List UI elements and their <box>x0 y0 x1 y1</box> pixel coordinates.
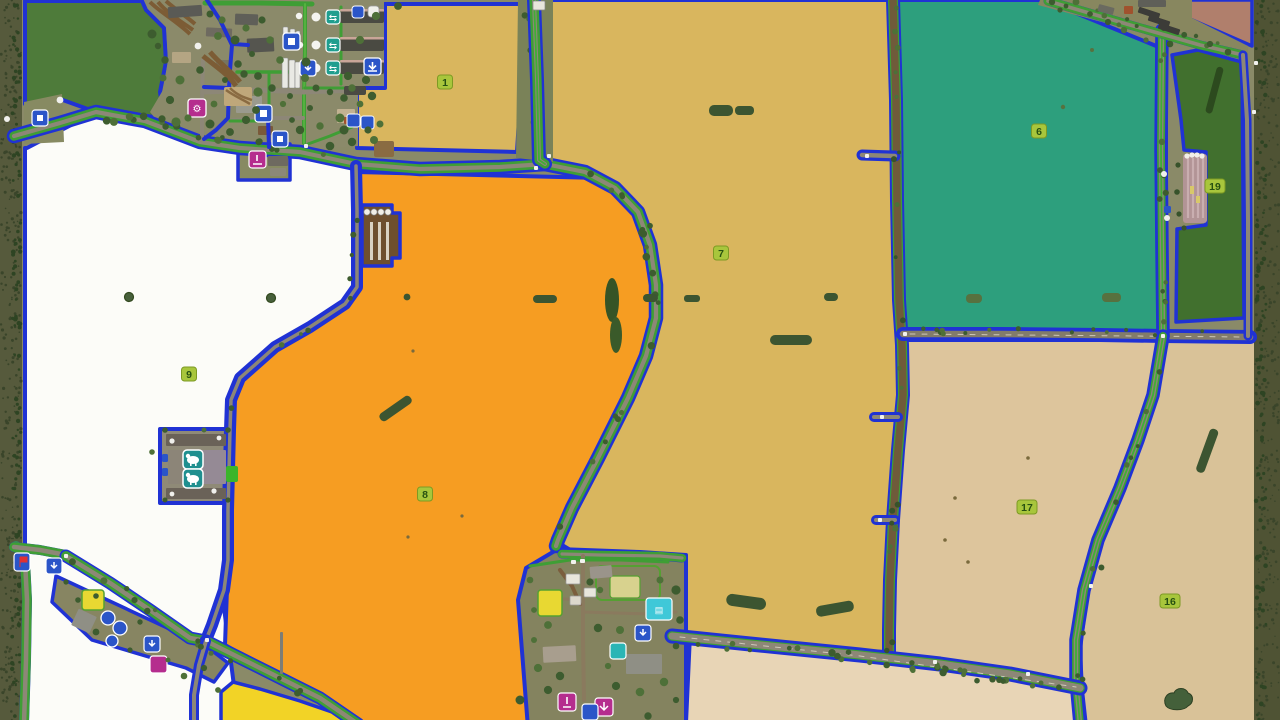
svg-text:⇆: ⇆ <box>329 41 337 52</box>
svg-text:9: 9 <box>186 369 192 381</box>
svg-text:⚙: ⚙ <box>193 104 202 115</box>
svg-text:6: 6 <box>1036 126 1042 138</box>
svg-text:8: 8 <box>422 489 428 501</box>
svg-text:19: 19 <box>1209 181 1221 193</box>
svg-text:⇆: ⇆ <box>329 64 337 75</box>
svg-text:▤: ▤ <box>655 605 664 615</box>
svg-text:16: 16 <box>1164 596 1176 608</box>
svg-text:7: 7 <box>718 248 724 260</box>
svg-text:1: 1 <box>442 77 448 89</box>
svg-text:17: 17 <box>1021 502 1033 514</box>
svg-text:⇆: ⇆ <box>329 13 337 24</box>
